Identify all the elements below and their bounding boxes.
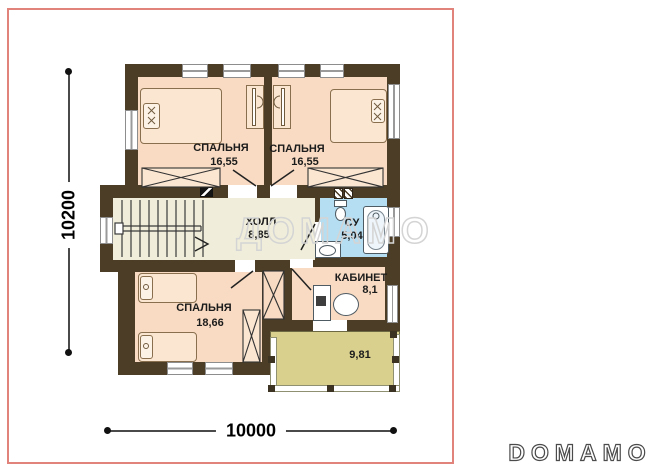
window (223, 64, 251, 78)
room-label: СПАЛЬНЯ (193, 142, 248, 154)
balcony-railing-right (393, 334, 400, 392)
nightstand-icon (140, 276, 153, 300)
door-opening-bedroom-tr (270, 185, 297, 198)
dimension-label-height: 10200 (59, 182, 80, 248)
window (167, 362, 193, 375)
dimension-dot (65, 349, 72, 356)
balcony-post (327, 385, 334, 392)
window (205, 362, 233, 375)
dimension-dot (390, 427, 397, 434)
balcony-railing-bottom (270, 385, 400, 392)
window (320, 64, 344, 78)
monitor-icon (316, 296, 326, 306)
room-label: КАБИНЕТ (335, 272, 387, 284)
door-opening-balcony (313, 320, 347, 331)
nightstand-icon (371, 99, 385, 123)
brand-logo: DOMAMO (508, 440, 651, 467)
balcony-post (389, 385, 396, 392)
vent-shaft-icon (334, 188, 343, 199)
balcony-post (392, 356, 399, 363)
electrical-panel-icon (200, 187, 213, 197)
door-opening-office (290, 259, 313, 268)
nightstand-icon (140, 335, 153, 359)
dimension-label-width: 10000 (216, 421, 286, 442)
floor-plan-page: { "branding": { "watermark": "ДОМАМО", "… (0, 0, 665, 470)
cabinet-door-icon (252, 88, 256, 126)
room-area: 16,55 (210, 156, 238, 168)
window (182, 64, 208, 78)
balcony-railing-left (270, 337, 277, 392)
balcony-floor (270, 331, 400, 392)
vent-shaft-icon (344, 188, 353, 199)
room-label: СПАЛЬНЯ (269, 143, 324, 155)
nightstand-icon (143, 103, 160, 129)
room-area: 8,1 (362, 284, 377, 296)
room-area: 9,81 (349, 349, 370, 361)
room-label: СПАЛЬНЯ (176, 302, 231, 314)
door-opening-bedroom-tl (228, 185, 257, 198)
room-area: 16,55 (291, 156, 319, 168)
balcony-post (268, 385, 275, 392)
window (278, 64, 305, 78)
window (388, 84, 400, 139)
room-area: 18,66 (196, 317, 224, 329)
balcony-post (268, 356, 275, 363)
door-opening-bedroom-bl (235, 260, 255, 272)
window (387, 285, 398, 323)
window (125, 110, 138, 150)
window (100, 217, 113, 244)
cabinet-door-icon (281, 88, 285, 126)
toilet-tank-icon (334, 200, 347, 207)
dimension-dot (104, 427, 111, 434)
dimension-dot (65, 68, 72, 75)
chair-icon (333, 293, 359, 316)
watermark: ДОМАМО (236, 210, 434, 252)
balcony-post (390, 331, 397, 338)
